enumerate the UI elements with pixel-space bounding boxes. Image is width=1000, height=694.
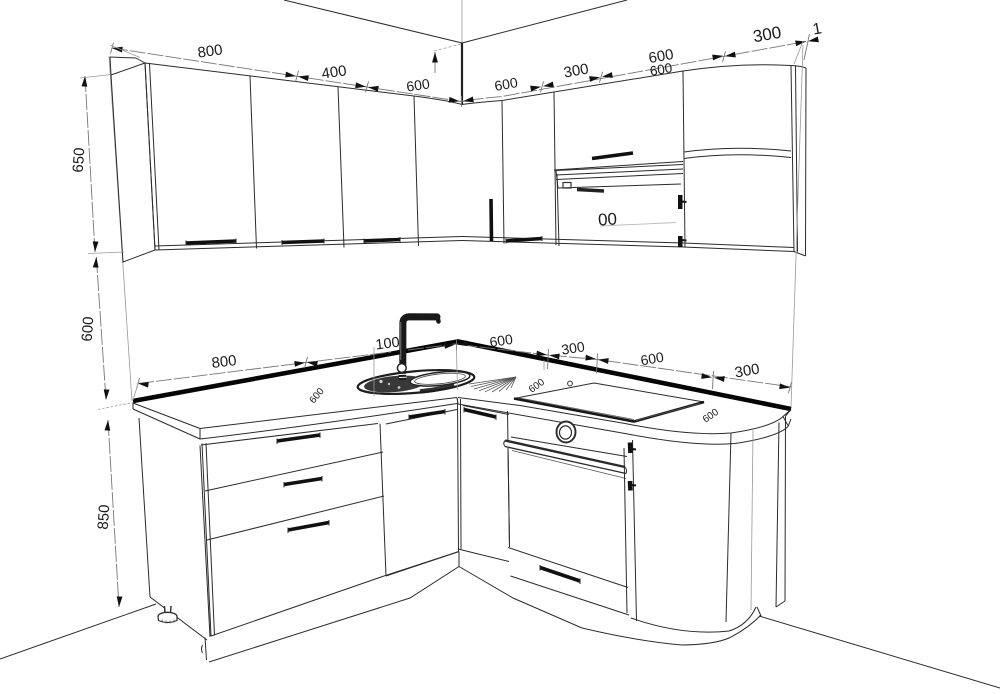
svg-text:600: 600: [79, 316, 98, 342]
svg-text:650: 650: [70, 147, 89, 173]
svg-text:850: 850: [95, 504, 114, 530]
svg-text:800: 800: [211, 352, 238, 372]
svg-text:100: 100: [375, 335, 401, 354]
svg-text:00: 00: [597, 209, 617, 229]
